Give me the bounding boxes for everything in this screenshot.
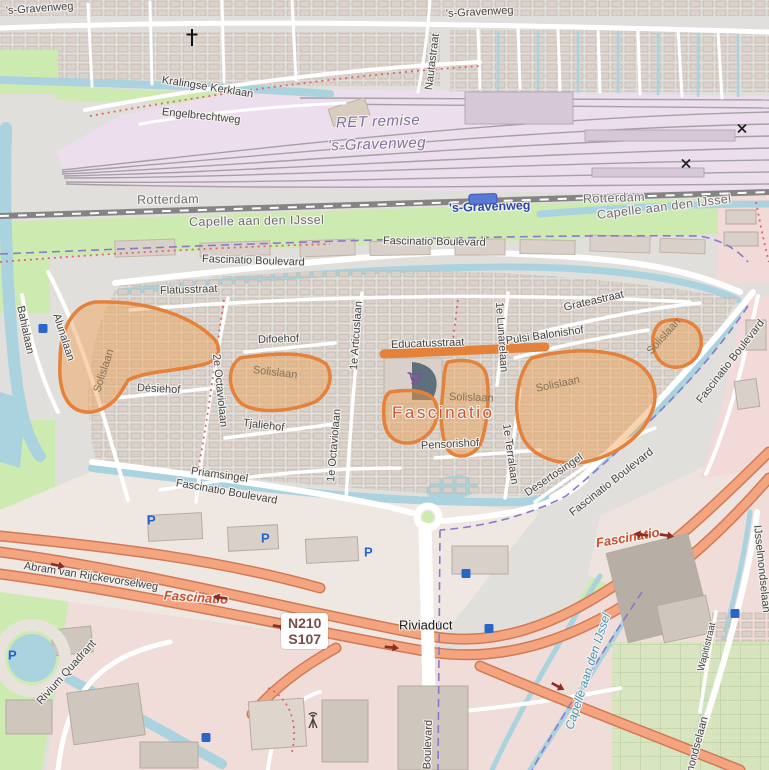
road-label: Kralingse Kerklaan <box>161 74 254 100</box>
bus-stop-icon <box>485 620 494 638</box>
bus-stop-icon <box>731 605 740 623</box>
road-label: Fascinatio Boulevard <box>383 235 486 249</box>
highlight-label: Solislaan <box>645 316 684 357</box>
road-label: 2e Octaviolaan <box>210 353 230 427</box>
road-label: Flatusstraat <box>160 283 218 297</box>
suburb-label: Fascinatio <box>595 524 661 550</box>
road-label: Désiehof <box>137 382 181 396</box>
road-label: IJsselmondselaan <box>751 524 769 613</box>
road-ref-s107: S107 <box>288 631 321 647</box>
road-ref-n210: N210 <box>288 615 321 631</box>
road-label: Bahialaan <box>14 305 36 355</box>
crossing-icon <box>737 121 748 139</box>
road-shield: N210 S107 <box>281 613 328 649</box>
road-label: IJsselmondselaan <box>676 715 710 770</box>
road-label: 1e Lunarelaan <box>493 302 510 373</box>
road-label: 1e Articuslaan <box>348 301 365 371</box>
road-label: Alunalaan <box>50 312 77 362</box>
bus-stop-icon <box>462 565 471 583</box>
parking-icon: P <box>261 531 270 546</box>
supermarket-icon <box>407 371 424 391</box>
label-layer: 's-Gravenweg's-GravenwegNautastraatKrali… <box>0 0 769 770</box>
road-label: Fascinatio Boulevard <box>202 253 305 269</box>
map-canvas[interactable]: 's-Gravenweg's-GravenwegNautastraatKrali… <box>0 0 769 770</box>
road-label: Educatusstraat <box>391 336 465 351</box>
road-label: Wapitistraat <box>696 621 719 672</box>
highlight-label: Solislaan <box>91 348 116 394</box>
road-label: Rivium Quadrant <box>35 638 99 707</box>
crossing-icon <box>681 156 692 174</box>
church-icon <box>185 29 200 51</box>
depot-label: RET remise <box>336 112 421 132</box>
highlight-label: Solislaan <box>252 364 298 381</box>
bus-stop-icon <box>202 729 211 747</box>
road-label: Difoehof <box>258 333 299 346</box>
municipality-label: Capelle aan den IJssel <box>189 213 325 229</box>
road-label: Tjaliehof <box>242 417 285 434</box>
road-label: Pensorishof <box>421 437 480 452</box>
boundary-label: Capelle aan den IJssel <box>562 611 613 731</box>
antenna-icon <box>306 712 321 734</box>
road-label: Fascinatio Boulevard <box>694 317 767 405</box>
parking-icon: P <box>8 648 17 663</box>
depot-label: 's-Gravenweg <box>328 134 427 154</box>
bus-stop-icon <box>39 320 48 338</box>
road-label: 1e Octaviolaan <box>325 408 343 482</box>
highlight-label: Solislaan <box>449 391 494 405</box>
oneway-arrow-icon <box>384 638 401 657</box>
municipality-label: Rotterdam <box>137 192 199 207</box>
road-label: Abram van Rijckevorselweg <box>23 560 159 593</box>
parking-icon: P <box>147 513 156 528</box>
oneway-arrow-icon <box>632 524 649 544</box>
oneway-arrow-icon <box>547 676 569 699</box>
suburb-label: Fascinatio <box>392 403 494 423</box>
road-label: 's-Gravenweg <box>446 4 514 20</box>
road-label: Engelbrechtweg <box>161 106 241 126</box>
road-label: Desertosingel <box>523 451 585 499</box>
oneway-arrow-icon <box>211 587 228 607</box>
road-label: 's-Gravenweg <box>6 0 74 17</box>
road-label: Grateastraat <box>563 288 625 313</box>
station-icon <box>468 191 499 210</box>
road-label: 1e Terralaan <box>500 423 520 485</box>
road-label: Rivium Boulevard <box>420 720 435 770</box>
oneway-arrow-icon <box>658 526 675 546</box>
bridge-label: Riviaduct <box>399 618 452 633</box>
road-label: Nautastraat <box>423 33 442 91</box>
highlight-label: Solislaan <box>535 374 581 395</box>
road-label: Pulsi Balonishof <box>505 324 584 347</box>
parking-icon: P <box>364 545 373 560</box>
